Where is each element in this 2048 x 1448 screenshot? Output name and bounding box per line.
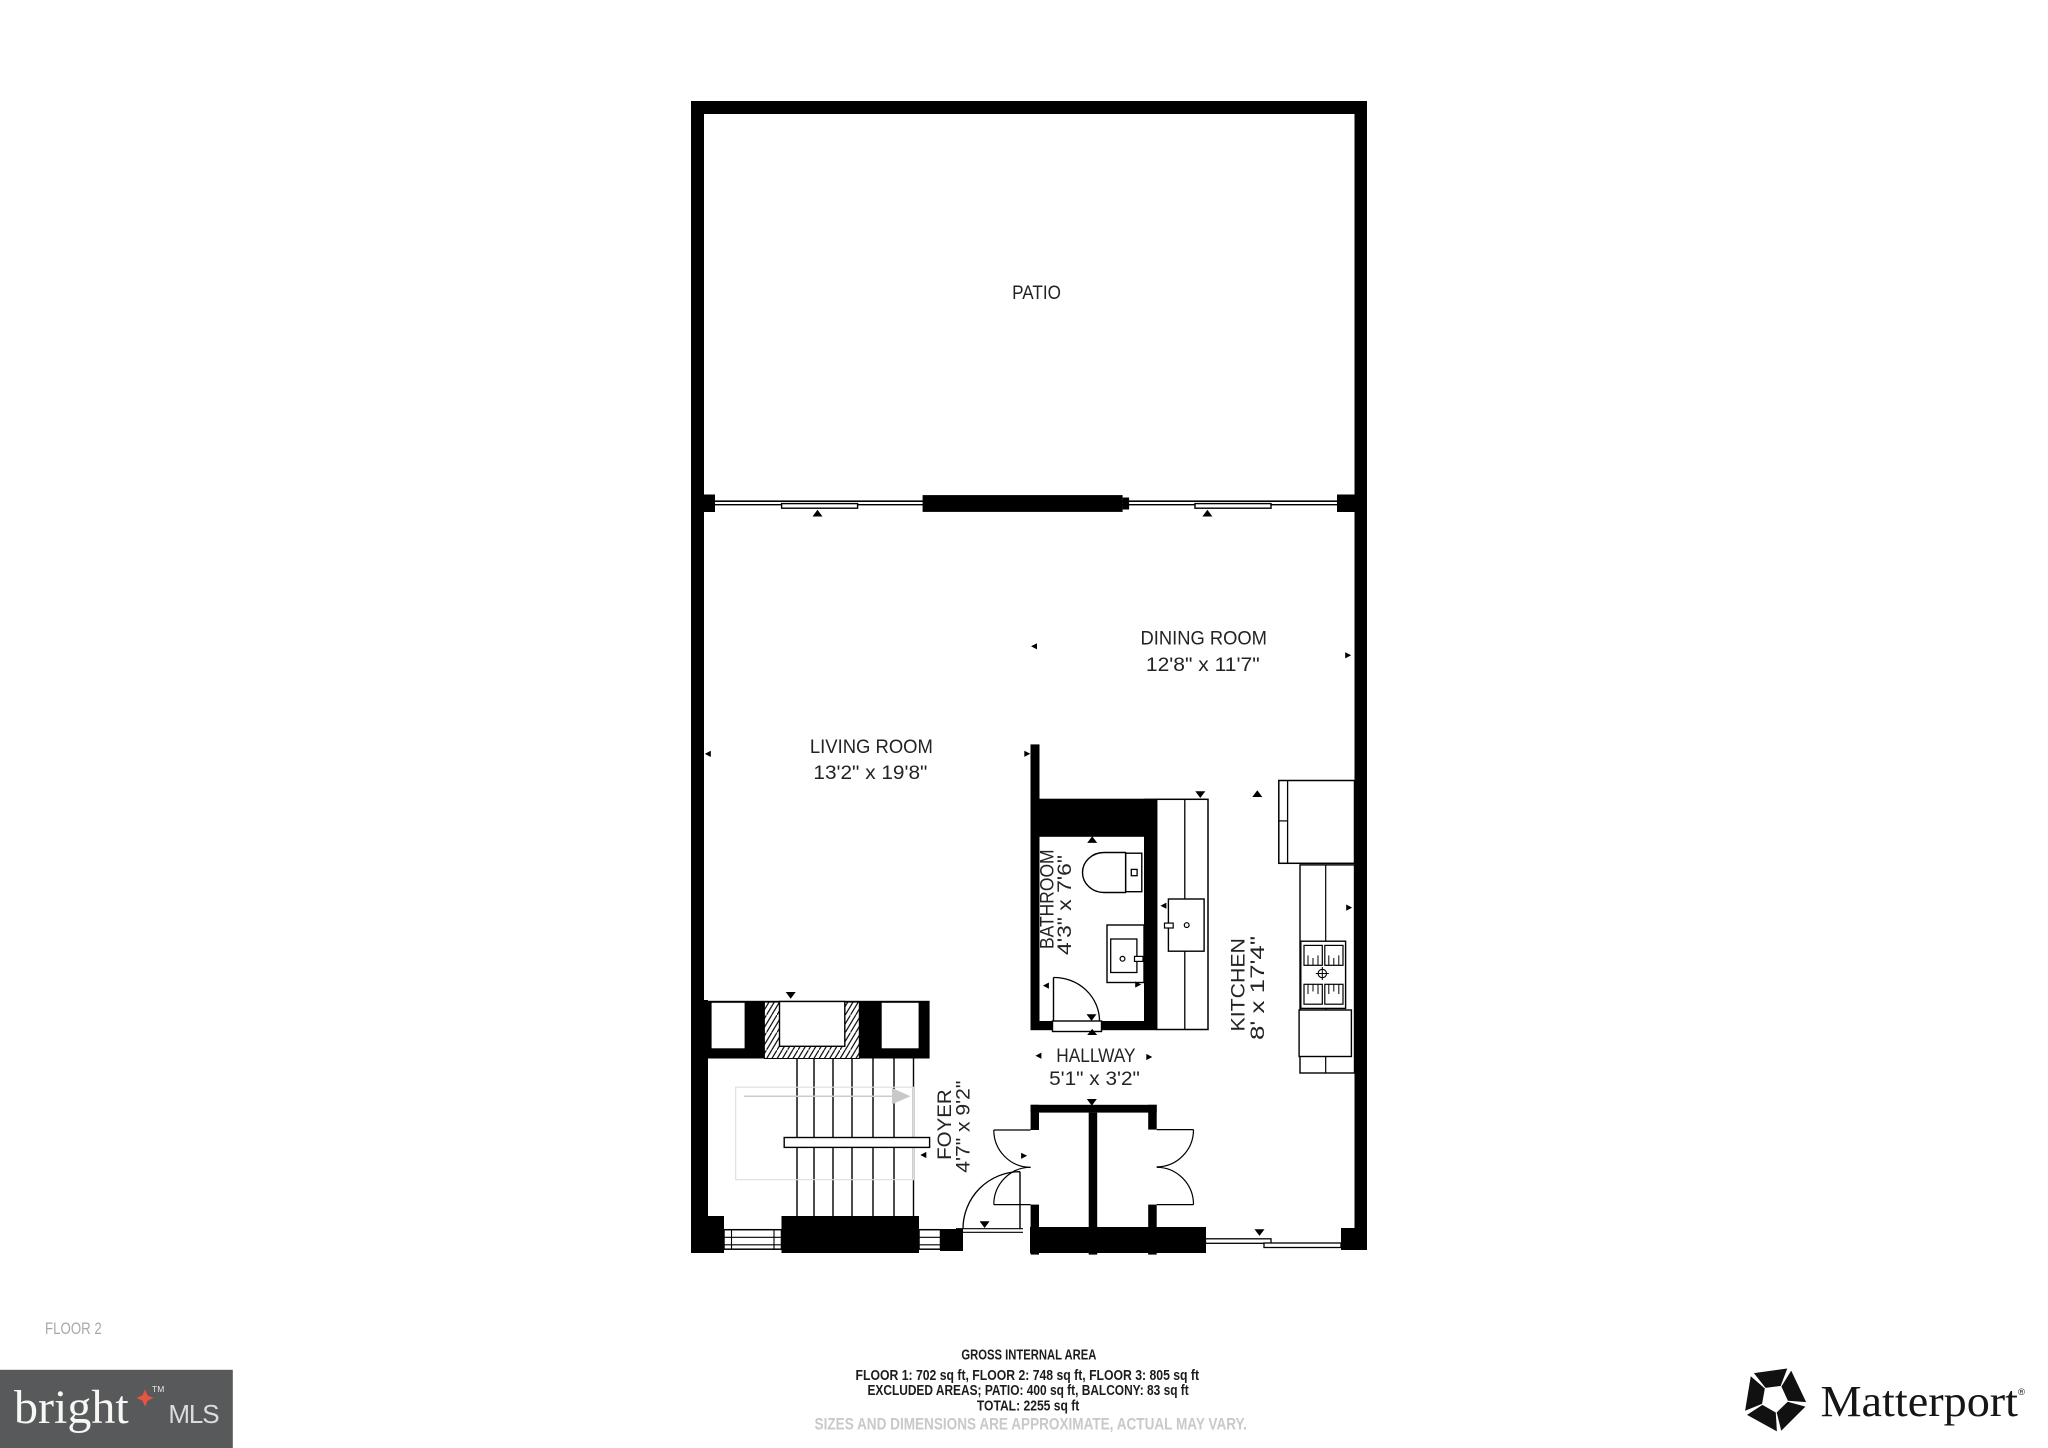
svg-text:4'3" x 7'6": 4'3" x 7'6" bbox=[1055, 855, 1076, 955]
svg-text:MLS: MLS bbox=[168, 1399, 219, 1429]
svg-text:13'2" x 19'8": 13'2" x 19'8" bbox=[813, 763, 927, 784]
svg-text:4'7" x 9'2": 4'7" x 9'2" bbox=[954, 1081, 975, 1173]
svg-text:12'8" x 11'7": 12'8" x 11'7" bbox=[1146, 655, 1260, 676]
svg-text:TOTAL: 2255 sq ft: TOTAL: 2255 sq ft bbox=[977, 1399, 1080, 1415]
svg-text:bright: bright bbox=[14, 1381, 129, 1434]
svg-text:DINING ROOM: DINING ROOM bbox=[1141, 629, 1267, 650]
svg-text:5'1" x 3'2": 5'1" x 3'2" bbox=[1049, 1069, 1140, 1090]
svg-text:KITCHEN: KITCHEN bbox=[1228, 938, 1249, 1031]
svg-text:8' x 17'4": 8' x 17'4" bbox=[1248, 936, 1269, 1040]
svg-text:LIVING ROOM: LIVING ROOM bbox=[810, 737, 933, 758]
svg-text:FLOOR 2: FLOOR 2 bbox=[45, 1320, 102, 1338]
svg-text:TM: TM bbox=[152, 1384, 164, 1394]
svg-text:HALLWAY: HALLWAY bbox=[1056, 1046, 1136, 1067]
svg-text:FLOOR 1: 702 sq ft, FLOOR 2: 7: FLOOR 1: 702 sq ft, FLOOR 2: 748 sq ft, … bbox=[856, 1368, 1200, 1384]
svg-text:EXCLUDED AREAS; PATIO: 400 sq: EXCLUDED AREAS; PATIO: 400 sq ft, BALCON… bbox=[867, 1383, 1188, 1399]
svg-text:GROSS INTERNAL AREA: GROSS INTERNAL AREA bbox=[961, 1347, 1096, 1363]
svg-text:PATIO: PATIO bbox=[1012, 283, 1061, 304]
svg-text:Matterport: Matterport bbox=[1821, 1377, 2019, 1426]
svg-text:®: ® bbox=[2018, 1387, 2025, 1398]
svg-text:SIZES AND DIMENSIONS ARE APPRO: SIZES AND DIMENSIONS ARE APPROXIMATE, AC… bbox=[815, 1414, 1247, 1433]
